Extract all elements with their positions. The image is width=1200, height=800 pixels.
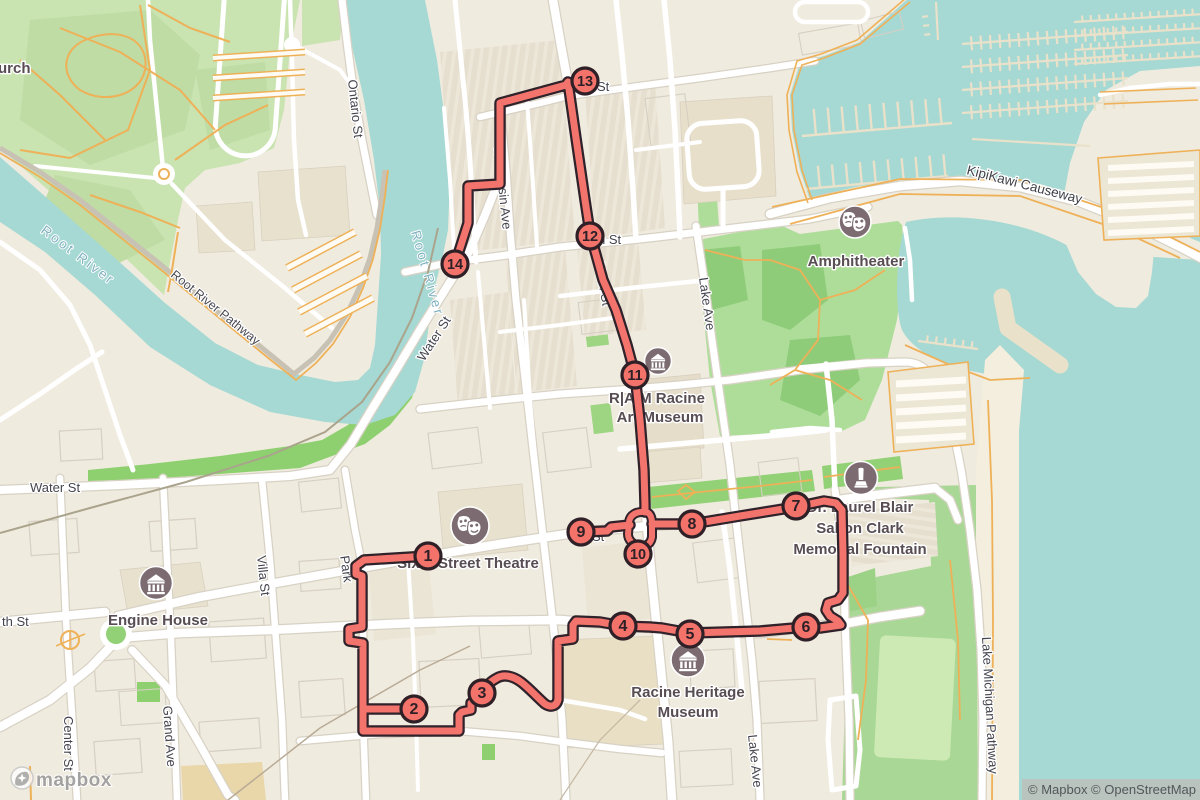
svg-text:mapbox: mapbox — [36, 770, 112, 791]
svg-text:10: 10 — [630, 547, 646, 563]
svg-text:Amphitheater: Amphitheater — [808, 253, 905, 270]
svg-text:Engine House: Engine House — [108, 612, 208, 629]
svg-text:14: 14 — [447, 257, 463, 273]
svg-text:6: 6 — [802, 619, 811, 636]
svg-text:3: 3 — [478, 685, 487, 702]
svg-text:Water St: Water St — [30, 480, 80, 495]
svg-text:Racine Heritage: Racine Heritage — [631, 684, 744, 701]
svg-text:Center St: Center St — [61, 716, 76, 771]
svg-text:R|A|M Racine: R|A|M Racine — [609, 390, 705, 407]
svg-text:7: 7 — [792, 498, 801, 515]
svg-text:1: 1 — [424, 548, 433, 565]
svg-text:© Mapbox © OpenStreetMap: © Mapbox © OpenStreetMap — [1028, 782, 1196, 797]
svg-text:4: 4 — [619, 618, 628, 635]
svg-text:Salton Clark: Salton Clark — [816, 520, 904, 537]
svg-text:th St: th St — [2, 614, 29, 629]
svg-text:8: 8 — [688, 516, 697, 533]
svg-text:11: 11 — [627, 368, 642, 384]
svg-text:9: 9 — [577, 524, 586, 541]
svg-text:urch: urch — [0, 60, 31, 77]
svg-text:Museum: Museum — [658, 704, 719, 721]
svg-text:12: 12 — [582, 229, 598, 245]
svg-text:5: 5 — [686, 626, 695, 643]
svg-text:Art Museum: Art Museum — [617, 409, 704, 426]
svg-text:13: 13 — [577, 74, 593, 90]
svg-text:2: 2 — [410, 701, 419, 718]
svg-text:Memorial Fountain: Memorial Fountain — [793, 541, 926, 558]
